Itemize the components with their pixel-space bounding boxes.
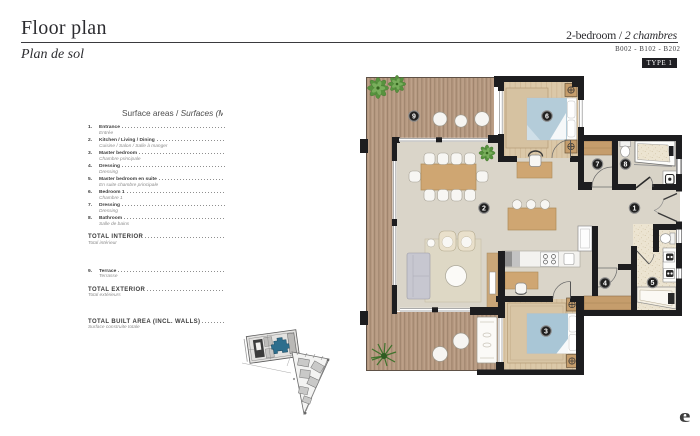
svg-text:4: 4 [603,281,607,288]
svg-text:3: 3 [544,329,548,336]
svg-text:8: 8 [624,162,628,169]
svg-text:5: 5 [651,280,655,287]
svg-text:7: 7 [596,162,600,169]
svg-text:2: 2 [482,206,486,213]
svg-text:9: 9 [412,114,416,121]
svg-text:6: 6 [545,114,549,121]
svg-text:1: 1 [633,206,637,213]
